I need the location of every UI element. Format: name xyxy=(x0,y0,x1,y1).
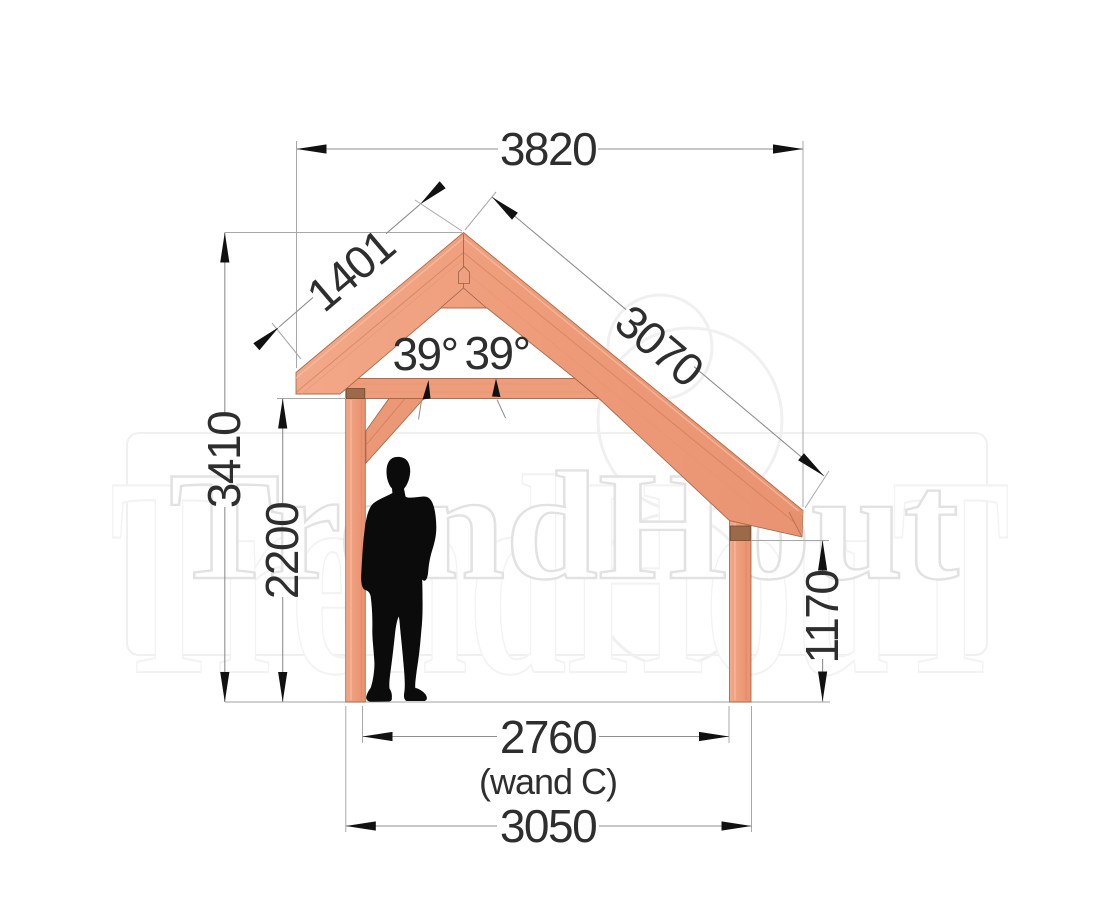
svg-text:2760: 2760 xyxy=(500,711,596,763)
svg-text:3410: 3410 xyxy=(198,412,250,508)
svg-text:39°: 39° xyxy=(392,328,457,380)
svg-text:2200: 2200 xyxy=(256,503,308,599)
svg-text:1170: 1170 xyxy=(796,571,848,664)
svg-text:(wand C): (wand C) xyxy=(479,761,617,802)
svg-text:3050: 3050 xyxy=(500,800,596,852)
svg-text:3820: 3820 xyxy=(500,123,596,175)
svg-text:39°: 39° xyxy=(464,327,529,379)
